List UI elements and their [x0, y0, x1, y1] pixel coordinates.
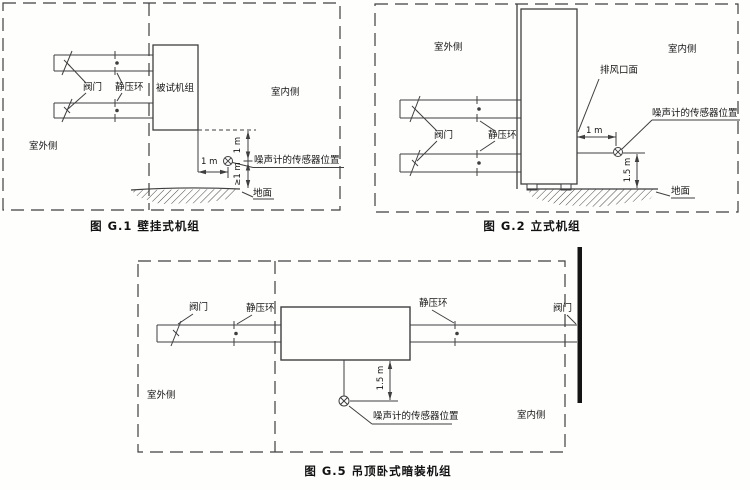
- fig2-ground: [527, 189, 695, 207]
- fig1-caption: 图 G.1 壁挂式机组: [55, 218, 235, 234]
- fig2-indoor-side-label: 室内侧: [668, 45, 697, 55]
- fig2-ground-label: 地面: [671, 187, 690, 197]
- fig5-indoor-side-label: 室内侧: [517, 411, 546, 421]
- fig5-caption: 图 G.5 吊顶卧式暗装机组: [278, 463, 478, 479]
- fig5-sensor-position-label: 噪声计的传感器位置: [373, 412, 459, 422]
- fig2-dim-1m-horizontal: 1 m: [586, 127, 602, 136]
- fig2-sensor-position-label: 噪声计的传感器位置: [652, 109, 738, 119]
- fig2-dim-1-5m-vertical: 1.5 m: [624, 155, 634, 185]
- fig2-outlet-leader: [578, 79, 599, 132]
- fig5-static-ring-right-label: 静压环: [419, 299, 448, 309]
- fig5-valve-left-label: 阀门: [189, 303, 208, 313]
- figure5-linework: [138, 247, 582, 452]
- fig1-dim-1m-horizontal: 1 m: [201, 158, 217, 167]
- fig2-dimensions: [577, 132, 645, 188]
- fig1-outdoor-side-label: 室外侧: [29, 142, 58, 152]
- fig2-unit-box: [521, 9, 577, 184]
- fig5-static-ring-left-label: 静压环: [246, 304, 275, 314]
- fig1-static-ring-label: 静压环: [115, 83, 144, 93]
- fig5-wall-bar: [578, 247, 583, 403]
- fig1-indoor-side-label: 室内侧: [271, 88, 300, 98]
- figure1-linework: [3, 3, 344, 210]
- fig2-sensor-marker: [614, 120, 741, 157]
- fig1-valve-label: 阀门: [83, 83, 102, 93]
- fig1-unit-under-test-label: 被试机组: [156, 84, 194, 94]
- fig5-valve-right-label: 阀门: [553, 304, 572, 314]
- fig2-outdoor-side-label: 室外侧: [434, 43, 463, 53]
- fig5-dim-1-5m-vertical: 1.5 m: [377, 363, 387, 393]
- fig1-dim-1m-vertical: 1 m: [234, 130, 244, 160]
- fig5-dimensions: [344, 360, 398, 401]
- fig1-sensor-position-label: 噪声计的传感器位置: [254, 156, 340, 166]
- fig1-dim-ge1m-vertical: ≥1 m: [234, 159, 244, 189]
- fig2-caption: 图 G.2 立式机组: [442, 218, 622, 234]
- technical-diagram-page: 阀门 静压环 被试机组 室内侧 室外侧 1 m 1 m ≥1 m 噪声计的传感器…: [0, 0, 750, 490]
- fig2-exhaust-outlet-face-label: 排风口面: [600, 66, 638, 76]
- fig5-outdoor-side-label: 室外侧: [147, 391, 176, 401]
- fig2-valve-label: 阀门: [434, 131, 453, 141]
- fig5-unit-box: [281, 307, 410, 360]
- fig1-ground-label: 地面: [253, 189, 272, 199]
- fig2-static-ring-label: 静压环: [488, 131, 517, 141]
- fig2-static-ring-marks: [477, 96, 480, 176]
